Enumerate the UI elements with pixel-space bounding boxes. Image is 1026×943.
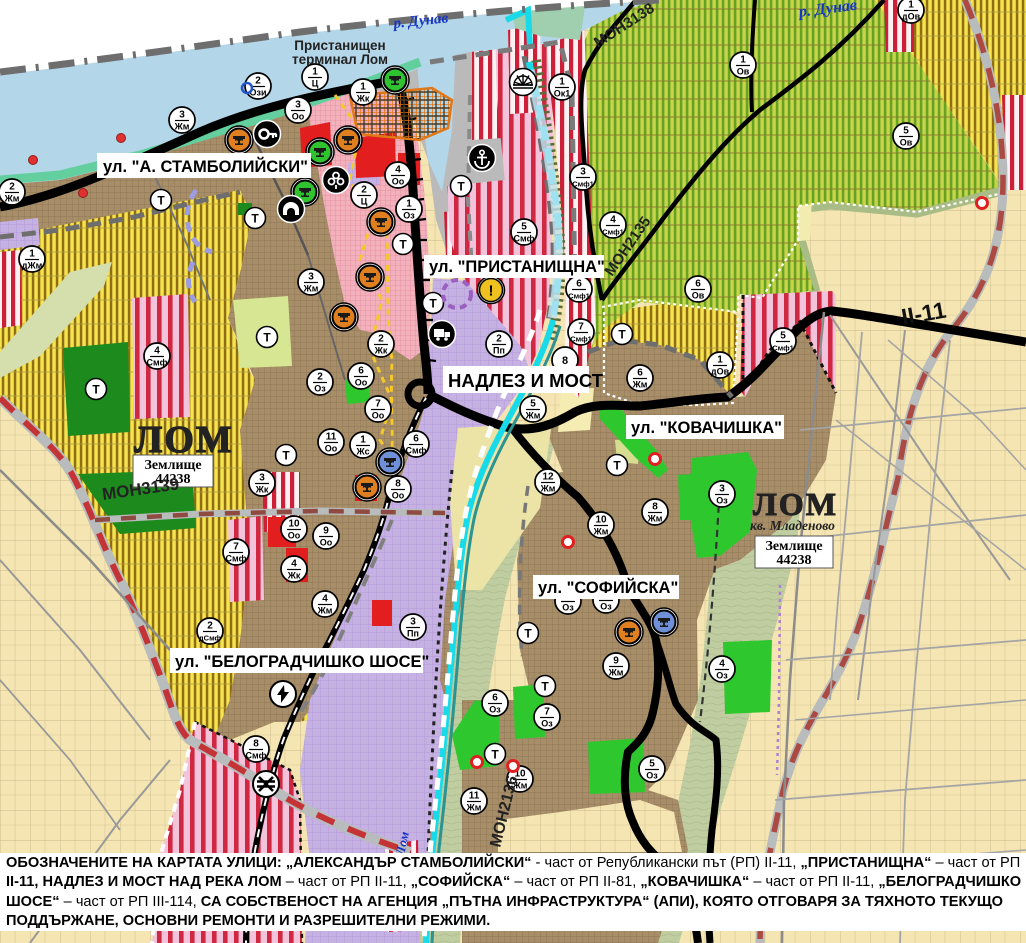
svg-text:2: 2 <box>361 185 367 196</box>
svg-text:Жм: Жм <box>4 194 20 204</box>
svg-text:Т: Т <box>263 331 271 345</box>
svg-text:5: 5 <box>530 399 536 410</box>
svg-text:Ов: Ов <box>737 67 750 77</box>
svg-text:4: 4 <box>291 559 297 570</box>
svg-text:1: 1 <box>360 82 366 93</box>
svg-text:ул. "БЕЛОГРАДЧИШКО ШОСЕ": ул. "БЕЛОГРАДЧИШКО ШОСЕ" <box>175 653 429 671</box>
svg-text:11: 11 <box>326 432 337 443</box>
svg-text:1: 1 <box>360 435 366 446</box>
svg-text:Т: Т <box>399 238 407 252</box>
svg-text:10: 10 <box>288 519 300 530</box>
svg-text:Жм: Жм <box>593 527 609 537</box>
svg-text:11: 11 <box>469 791 480 802</box>
svg-text:терминал Лом: терминал Лом <box>292 52 388 67</box>
svg-text:Оз: Оз <box>646 771 658 781</box>
svg-text:12: 12 <box>542 472 554 483</box>
svg-text:1: 1 <box>740 55 746 66</box>
svg-text:Оо: Оо <box>372 411 385 421</box>
svg-text:Смф1: Смф1 <box>570 335 592 344</box>
svg-text:НАДЛЕЗ И МОСТ: НАДЛЕЗ И МОСТ <box>448 370 604 391</box>
svg-text:2: 2 <box>255 76 261 87</box>
svg-text:8: 8 <box>253 739 259 750</box>
svg-text:Смф: Смф <box>406 446 427 456</box>
svg-text:MOH3139: MOH3139 <box>101 474 180 504</box>
svg-text:Жм: Жм <box>525 411 541 421</box>
svg-text:Оз: Оз <box>541 719 553 729</box>
svg-text:3: 3 <box>295 100 301 111</box>
svg-text:Т: Т <box>457 180 465 194</box>
svg-text:Т: Т <box>429 297 437 311</box>
svg-text:ул. "СОФИЙСКА": ул. "СОФИЙСКА" <box>538 578 678 597</box>
svg-text:Жм: Жм <box>317 606 333 616</box>
svg-text:Оз: Оз <box>403 211 415 221</box>
svg-text:Оз: Оз <box>489 705 501 715</box>
svg-text:10: 10 <box>595 515 607 526</box>
svg-text:р. Дунав: р. Дунав <box>391 10 449 32</box>
svg-text:!: ! <box>489 283 494 300</box>
svg-text:ЛОМ: ЛОМ <box>753 486 838 522</box>
svg-text:1: 1 <box>312 67 318 78</box>
svg-text:Землище: Землище <box>765 539 822 554</box>
svg-text:6: 6 <box>492 693 498 704</box>
svg-text:Ц: Ц <box>361 197 368 207</box>
svg-text:Т: Т <box>282 449 290 463</box>
svg-text:Т: Т <box>524 627 532 641</box>
svg-text:3: 3 <box>410 617 416 628</box>
svg-text:Оз: Оз <box>600 602 612 612</box>
svg-text:2: 2 <box>496 334 502 345</box>
svg-text:Ов: Ов <box>900 138 913 148</box>
svg-text:Т: Т <box>491 748 499 762</box>
svg-text:Ок1: Ок1 <box>554 89 571 99</box>
svg-text:9: 9 <box>323 526 329 537</box>
svg-text:Смф: Смф <box>147 358 168 368</box>
svg-text:2: 2 <box>317 372 323 383</box>
svg-text:6: 6 <box>358 366 364 377</box>
svg-text:Жм: Жм <box>647 514 663 524</box>
svg-text:3: 3 <box>308 272 314 283</box>
svg-text:кв. Младеново: кв. Младеново <box>750 518 835 533</box>
svg-text:Жм: Жм <box>174 122 190 132</box>
svg-text:Оо: Оо <box>325 444 338 454</box>
svg-text:Жм: Жм <box>303 284 319 294</box>
svg-text:дОв: дОв <box>711 367 730 377</box>
svg-text:Оз: Оз <box>562 603 574 613</box>
svg-text:Оо: Оо <box>392 491 405 501</box>
svg-text:2: 2 <box>9 182 15 193</box>
svg-text:3: 3 <box>580 167 586 178</box>
svg-text:Т: Т <box>618 328 626 342</box>
svg-text:Оз: Оз <box>314 384 326 394</box>
svg-text:ул. "КОВАЧИШКА": ул. "КОВАЧИШКА" <box>631 419 782 437</box>
svg-text:MOH2136: MOH2136 <box>487 774 521 849</box>
svg-text:Смф1: Смф1 <box>568 292 590 301</box>
svg-text:Т: Т <box>613 459 621 473</box>
svg-text:р. Дунав: р. Дунав <box>796 0 858 21</box>
svg-text:Жм: Жм <box>608 668 624 678</box>
svg-text:5: 5 <box>780 331 786 342</box>
svg-text:8: 8 <box>652 502 658 513</box>
svg-text:Смф: Смф <box>246 751 267 761</box>
svg-text:5: 5 <box>649 759 655 770</box>
svg-text:Пп: Пп <box>493 346 505 356</box>
svg-text:Жм: Жм <box>540 484 556 494</box>
svg-text:2: 2 <box>207 621 213 632</box>
svg-text:4: 4 <box>719 659 725 670</box>
svg-text:4: 4 <box>610 215 616 226</box>
svg-text:7: 7 <box>233 542 239 553</box>
svg-text:Т: Т <box>157 194 165 208</box>
svg-text:MOH3138: MOH3138 <box>591 0 658 51</box>
svg-text:Оо: Оо <box>355 378 368 388</box>
svg-text:Жк: Жк <box>287 571 301 581</box>
svg-text:Т: Т <box>251 212 259 226</box>
svg-text:Жк: Жк <box>255 485 269 495</box>
svg-text:Землище: Землище <box>144 458 201 473</box>
svg-text:II-11: II-11 <box>899 297 948 330</box>
svg-text:Жк: Жк <box>374 346 388 356</box>
svg-text:1: 1 <box>908 0 914 11</box>
svg-text:Жм: Жм <box>632 380 648 390</box>
svg-text:Ц: Ц <box>312 79 319 89</box>
svg-text:6: 6 <box>695 279 701 290</box>
svg-text:дСмф: дСмф <box>199 634 222 643</box>
svg-text:дОв: дОв <box>902 12 921 22</box>
svg-text:9: 9 <box>613 656 619 667</box>
svg-text:6: 6 <box>413 434 419 445</box>
svg-text:7: 7 <box>544 707 550 718</box>
svg-text:5: 5 <box>521 222 527 233</box>
svg-text:3: 3 <box>259 473 265 484</box>
svg-text:6: 6 <box>576 279 582 290</box>
svg-text:Смф: Смф <box>226 554 247 564</box>
svg-text:Оо: Оо <box>392 177 405 187</box>
svg-text:1: 1 <box>29 249 35 260</box>
svg-text:Смф1: Смф1 <box>572 180 594 189</box>
svg-text:Смф: Смф <box>514 234 535 244</box>
svg-text:44238: 44238 <box>777 553 812 568</box>
svg-text:Ов: Ов <box>692 291 705 301</box>
svg-text:дЖм: дЖм <box>22 261 43 271</box>
svg-text:2: 2 <box>378 334 384 345</box>
svg-text:Оз: Оз <box>716 496 728 506</box>
svg-text:1: 1 <box>559 77 565 88</box>
svg-text:Смф1: Смф1 <box>602 228 624 237</box>
svg-text:Оз: Оз <box>716 671 728 681</box>
svg-text:Т: Т <box>92 383 100 397</box>
svg-text:Оо: Оо <box>320 538 333 548</box>
svg-text:Пристанищен: Пристанищен <box>294 38 385 53</box>
svg-text:1: 1 <box>717 355 723 366</box>
svg-text:8: 8 <box>562 355 568 367</box>
svg-text:Жк: Жк <box>356 94 370 104</box>
svg-text:4: 4 <box>322 594 328 605</box>
svg-text:3: 3 <box>179 110 185 121</box>
svg-text:Оо: Оо <box>292 112 305 122</box>
svg-text:Смф1: Смф1 <box>772 344 794 353</box>
svg-text:7: 7 <box>375 399 381 410</box>
svg-text:3: 3 <box>719 484 725 495</box>
svg-text:8: 8 <box>395 479 401 490</box>
svg-text:Т: Т <box>541 680 549 694</box>
svg-text:4: 4 <box>154 346 160 357</box>
svg-text:1: 1 <box>406 199 412 210</box>
svg-text:Пп: Пп <box>407 629 419 639</box>
svg-text:Жм: Жм <box>466 803 482 813</box>
svg-text:ул. "ПРИСТАНИЩНА": ул. "ПРИСТАНИЩНА" <box>429 258 605 276</box>
svg-text:6: 6 <box>637 368 643 379</box>
svg-text:Жс: Жс <box>355 447 369 457</box>
svg-text:Оо: Оо <box>288 531 301 541</box>
svg-text:5: 5 <box>903 126 909 137</box>
svg-text:4: 4 <box>395 165 401 176</box>
svg-text:ул. "А. СТАМБОЛИЙСКИ": ул. "А. СТАМБОЛИЙСКИ" <box>103 157 308 176</box>
svg-text:7: 7 <box>578 322 584 333</box>
